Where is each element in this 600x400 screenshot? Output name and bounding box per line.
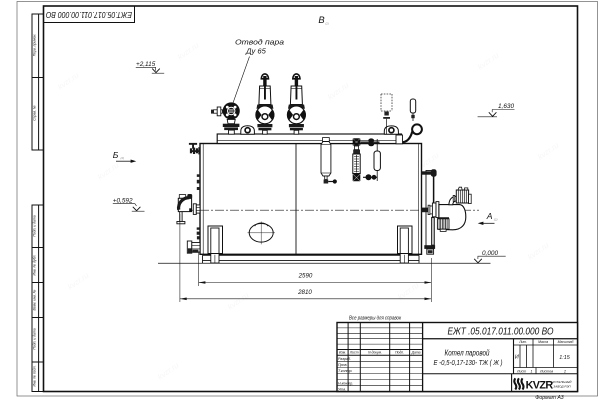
svg-text:Изм.: Изм. xyxy=(339,351,346,355)
svg-text:2590: 2590 xyxy=(298,273,313,280)
svg-text:N докум.: N докум. xyxy=(368,351,382,355)
svg-text:Подп. и дата: Подп. и дата xyxy=(33,215,37,236)
svg-text:Котел паровой: Котел паровой xyxy=(445,349,490,358)
svg-text:А: А xyxy=(486,211,493,221)
svg-text:Разраб.: Разраб. xyxy=(338,357,351,361)
svg-text:Дата: Дата xyxy=(411,351,421,355)
svg-text:0,000: 0,000 xyxy=(482,250,498,257)
svg-text:Б: Б xyxy=(113,150,119,160)
svg-text:Формат А3: Формат А3 xyxy=(535,395,563,400)
svg-text:1: 1 xyxy=(531,369,533,373)
svg-text:(2): (2) xyxy=(120,156,124,160)
svg-text:ЕЖТ.05.017.011.00.000 ВО: ЕЖТ.05.017.011.00.000 ВО xyxy=(46,10,132,19)
svg-text:Т.контр.: Т.контр. xyxy=(338,369,353,373)
svg-text:Масса: Масса xyxy=(538,340,548,344)
svg-text:KVZR: KVZR xyxy=(526,380,554,392)
svg-text:В: В xyxy=(318,14,324,25)
svg-text:Инв. № подл.: Инв. № подл. xyxy=(33,365,37,386)
svg-text:Перв. примен.: Перв. примен. xyxy=(33,34,37,57)
svg-text:Все размеры для справок: Все размеры для справок xyxy=(349,316,401,322)
svg-text:Лит.: Лит. xyxy=(518,340,527,344)
svg-text:Лист: Лист xyxy=(516,369,526,373)
svg-text:Масштаб: Масштаб xyxy=(558,340,574,344)
svg-text:+2,115: +2,115 xyxy=(136,61,156,68)
svg-text:Н.контр.: Н.контр. xyxy=(338,381,353,385)
svg-text:Утв.: Утв. xyxy=(338,387,346,391)
svg-text:(2): (2) xyxy=(325,22,329,26)
svg-text:Справ. №: Справ. № xyxy=(33,105,37,121)
svg-text:ЕЖТ .05.017.011.00.000 ВО: ЕЖТ .05.017.011.00.000 ВО xyxy=(448,327,554,338)
svg-text:Подп.: Подп. xyxy=(395,351,404,355)
svg-text:1:15: 1:15 xyxy=(559,355,570,361)
svg-text:(2): (2) xyxy=(494,218,498,222)
svg-text:ЗАВОД РЭП: ЗАВОД РЭП xyxy=(553,385,571,389)
svg-text:2810: 2810 xyxy=(297,289,312,296)
svg-text:1,630: 1,630 xyxy=(498,103,514,110)
svg-text:Отвод пара: Отвод пара xyxy=(235,38,284,47)
svg-text:И: И xyxy=(515,355,519,361)
svg-text:Подп. и дата: Подп. и дата xyxy=(33,328,37,349)
svg-text:Пров.: Пров. xyxy=(338,363,347,367)
svg-text:2: 2 xyxy=(563,369,566,373)
svg-text:Инв. № дубл.: Инв. № дубл. xyxy=(33,255,37,276)
svg-text:Лист: Лист xyxy=(349,351,359,355)
svg-text:Взам. инв. №: Взам. инв. № xyxy=(33,289,37,310)
svg-text:Ду 65: Ду 65 xyxy=(245,47,267,56)
svg-text:Е -0,5-0,17-130- ТЖ ( Ж ): Е -0,5-0,17-130- ТЖ ( Ж ) xyxy=(434,358,503,367)
svg-text:Листов: Листов xyxy=(539,369,553,373)
svg-text:КОТЕЛЬНЫЙ: КОТЕЛЬНЫЙ xyxy=(553,380,573,384)
